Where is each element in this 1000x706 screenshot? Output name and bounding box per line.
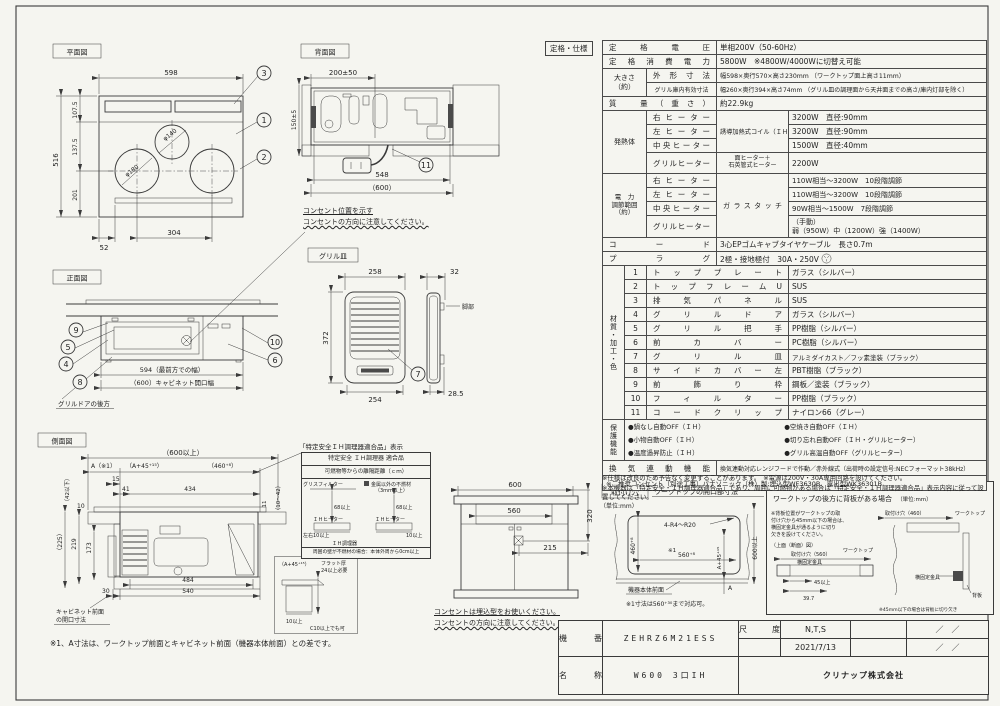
dim-10: 10	[77, 503, 85, 510]
dim-A45: （A+45⁺¹⁵）	[126, 463, 163, 470]
material-row-name: グリルドア	[647, 308, 789, 322]
dim-107-5: 107.5	[72, 101, 79, 118]
mount-ref1: ※1	[668, 548, 676, 554]
material-row-n: 11	[625, 406, 647, 420]
spec-range-right-value: 110W相当～3200W 10段階調節	[789, 174, 987, 188]
dim-548: 548	[375, 171, 388, 179]
callout-9: 9	[73, 326, 78, 335]
plan-view-label: 平面図	[67, 49, 88, 57]
dim-52: 52	[100, 244, 109, 252]
rear-outlet-note: コンセント位置を示す コンセントの方向に注意してください。	[303, 206, 429, 228]
spec-range-left-value: 110W相当～3200W 10段階調節	[789, 188, 987, 202]
material-row-value: PC樹脂（シルバー）	[789, 336, 987, 350]
callout-1: 1	[261, 116, 266, 125]
material-row-name: トッププレート	[647, 266, 789, 280]
cabinet-front-note-1: キャビネット前面	[56, 608, 104, 616]
spec-size1-value: 幅598×奥行570×高さ230mm （ワークトップ面上高さ11mm）	[717, 69, 987, 83]
spec-heater-center-value: 1500W 直径:40mm	[789, 139, 987, 153]
spec-heater-grill-type: 面ヒーター＋ 石英管式ヒーター	[717, 153, 789, 174]
spec-tag: 定格・仕様	[545, 41, 593, 56]
tokutei-title: 「特定安全ＩＨ調理器適合品」表示	[299, 441, 403, 451]
flat-detail: （A+45⁺¹⁵） フラット厚 24以上必要 10以上 C10以上でも可	[274, 556, 358, 634]
tokutei-noncomb-2: （3mm以上）	[375, 487, 408, 494]
material-row-value: PP樹脂（ブラック）	[789, 392, 987, 406]
bb-45min: 45以上	[814, 579, 830, 586]
material-row-value: SUS	[789, 294, 987, 308]
spec-range-right-label: 右ヒーター	[647, 174, 717, 188]
title-block-empty-3	[851, 639, 907, 657]
material-row-value: PBT樹脂（ブラック）	[789, 364, 987, 378]
scale-value: N,T,S	[781, 621, 851, 639]
callout-5: 5	[65, 343, 70, 352]
material-row-value: アルミダイカスト／フッ素塗装（ブラック）	[789, 350, 987, 364]
dim-cab-560: 560	[507, 507, 520, 515]
dim-600-min: （600以上）	[162, 448, 203, 457]
spec-cord-value: 3心EPゴムキャブタイヤケーブル 長さ0.7m	[717, 238, 987, 252]
title-block-table: 機 番 ZEHRZ6M21ESS 尺 度 N,T,S ／ ／ 2021/7/13…	[558, 620, 989, 695]
cabinet-outlet-note: コンセントは埋込型をお使いください。 コンセントの方向に注意してください。	[434, 607, 560, 629]
front-view-label: 正面図	[67, 275, 88, 283]
spec-protect-cell: ●鍋なし自動OFF（ＩＨ） ●空焼き自動OFF（ＩＨ） ●小物自動OFF（ＩＨ）…	[625, 420, 987, 461]
bb-note-5: ※45mm以下の場合は背板に切り欠き	[879, 606, 957, 613]
callout-2: 2	[261, 153, 266, 162]
tokutei-lr10: 左右10以上	[303, 532, 329, 539]
mount-a45: A+45⁺¹⁵	[716, 547, 723, 570]
dim-598: 598	[164, 69, 177, 77]
spec-power-value: 5800W ※4800W/4000Wに切替え可能	[717, 55, 987, 69]
scale-label: 尺 度	[739, 621, 781, 639]
spec-range-group: 電 力 調節範囲 （約）	[603, 174, 647, 238]
drawing-sheet: 平面図 φ140 φ180 598 516 107.5 137.5 201 52…	[0, 0, 1000, 706]
spec-heater-left-value: 3200W 直径:90mm	[789, 125, 987, 139]
dim-219: 219	[71, 538, 78, 550]
mount-560: 560⁺⁸	[678, 552, 696, 559]
spec-heater-type: 誘導加熱式コイル（ＩＨ）	[717, 111, 789, 153]
spec-heater-right-value: 3200W 直径:90mm	[789, 111, 987, 125]
mount-unit: （単位:mm）	[600, 502, 638, 510]
spec-plug-label: プラグ	[603, 252, 717, 266]
material-row-name: グリル皿	[647, 350, 789, 364]
spec-plug-cell: 2極・接地極付 30A・250V	[717, 252, 987, 266]
material-row-n: 8	[625, 364, 647, 378]
spec-table-wrap: 定格電圧 単相200V（50-60Hz） 定格消費電力 5800W ※4800W…	[602, 40, 987, 491]
side-footnote: ※1、A寸法は、ワークトップ前面とキャビネット前面（機器本体前面）との差です。	[50, 638, 335, 650]
dim-41: 41	[122, 486, 130, 493]
spec-mass-value: 約22.9kg	[717, 97, 987, 111]
material-row-n: 1	[625, 266, 647, 280]
spec-power-label: 定格消費電力	[603, 55, 717, 69]
spec-heater-group: 発熱体	[603, 111, 647, 174]
backboard-diagram: ※背板位置がワークトップの取 付け穴から45mm以下の場合は、 横固定金具が通る…	[767, 505, 991, 617]
revision-slash-2: ／ ／	[907, 639, 989, 657]
bb-note-4: 欠きを設けてください。	[771, 531, 826, 538]
material-row-name: コードクリップ	[647, 406, 789, 420]
spec-range-grill-label: グリルヒーター	[647, 216, 717, 238]
material-row-name: トップフレームU	[647, 280, 789, 294]
material-row-name: グリル把手	[647, 322, 789, 336]
dim-cab-320: 320	[586, 509, 594, 522]
spec-size1-label: 外形寸法	[647, 69, 717, 83]
dim-30: 30	[102, 588, 110, 595]
tokutei-noncomb-1: 金属以外の不燃材	[371, 481, 411, 488]
spec-voltage-value: 単相200V（50-60Hz）	[717, 41, 987, 55]
mount-a: A	[728, 585, 733, 592]
bb-subtitle: （上面（断面）図）	[771, 542, 816, 549]
spec-cord-label: コード	[603, 238, 717, 252]
mount-460: 460⁺⁸	[630, 537, 637, 555]
material-row-value: ナイロン66（グレー）	[789, 406, 987, 420]
callout-4: 4	[63, 360, 68, 369]
material-row-n: 3	[625, 294, 647, 308]
dim-15: 15	[112, 476, 120, 483]
tokutei-line1: 特定安全 ＩＨ調理器 適合品	[302, 453, 430, 466]
dim-460: （460⁺⁸）	[208, 463, 237, 470]
material-row-value: PP樹脂（シルバー）	[789, 322, 987, 336]
material-row-n: 6	[625, 336, 647, 350]
protect-item: ●切り忘れ自動OFF（ＩＨ・グリルヒーター）	[784, 434, 983, 447]
bb-note-1: ※背板位置がワークトップの取	[771, 510, 840, 517]
callout-10: 10	[270, 338, 280, 347]
grill-pan-label: グリル皿	[319, 252, 347, 261]
rear-outlet-note-line1: コンセント位置を示す	[303, 206, 429, 217]
spec-heater-grill-label: グリルヒーター	[647, 153, 717, 174]
material-row-n: 5	[625, 322, 647, 336]
spec-size2-value: 幅260×奥行394×高さ74mm （グリル皿の調理面から天井面までの高さ/庫内…	[717, 83, 987, 97]
dim-540: 540	[182, 588, 194, 595]
spec-size2-label: グリル庫内有効寸法	[647, 83, 717, 97]
revision-slash-1: ／ ／	[907, 621, 989, 639]
spec-voltage-label: 定格電圧	[603, 41, 717, 55]
material-row-n: 7	[625, 350, 647, 364]
tokutei-ih1: ＩＨヒーター	[313, 516, 343, 523]
spec-protect-group: 保護機能	[603, 420, 625, 461]
leg-label: 脚部	[462, 303, 474, 311]
material-row-name: フィルター	[647, 392, 789, 406]
bb-bracket-2: 横固定金具	[915, 574, 940, 581]
mount-600: 600以上	[751, 536, 759, 559]
dim-372: 372	[322, 331, 330, 344]
dim-254: 254	[368, 396, 382, 404]
spec-heater-left-label: 左ヒーター	[647, 125, 717, 139]
title-block-empty-2	[739, 639, 781, 657]
tokutei-grease: グリスフィルター	[303, 481, 343, 488]
rear-outlet-note-line2: コンセントの方向に注意してください。	[303, 217, 429, 228]
mount-note: ※1寸法は560⁺³⁰まで対応可。	[626, 600, 708, 608]
dim-phi140: φ140	[162, 127, 179, 142]
callout-11: 11	[421, 161, 431, 170]
callout-3: 3	[261, 69, 266, 78]
side-view-label: 側面図	[52, 437, 73, 446]
model-number-value: ZEHRZ6M21ESS	[603, 621, 739, 657]
material-row-name: 前カバー	[647, 336, 789, 350]
callout-6: 6	[272, 356, 277, 365]
plan-view: 平面図 φ140 φ180 598 516 107.5 137.5 201 52…	[28, 38, 300, 270]
flat-d10: 10以上	[286, 618, 302, 625]
material-row-value: ガラス（シルバー）	[789, 266, 987, 280]
callout-8: 8	[77, 378, 82, 387]
material-row-value: SUS	[789, 280, 987, 294]
bb-note-2: 付け穴から45mm以下の場合は、	[771, 517, 847, 524]
spec-range-grill-value: （手動） 弱（950W）中（1200W）強（1400W）	[789, 216, 987, 238]
tokutei-68b: 68以上	[396, 504, 412, 511]
dim-cab-215: 215	[543, 544, 556, 552]
tokutei-cooker: ＩＨ調理器	[332, 540, 357, 547]
dim-516: 516	[52, 153, 60, 167]
dim-28-5: 28.5	[448, 390, 464, 398]
material-row-name: 排気パネル	[647, 294, 789, 308]
dim-594: 594（最前方での幅）	[140, 365, 204, 374]
protect-item: ●小物自動OFF（ＩＨ）	[628, 434, 784, 447]
material-row-n: 2	[625, 280, 647, 294]
date-value: 2021/7/13	[781, 639, 851, 657]
callout-7: 7	[415, 370, 420, 379]
dim-225: （225）	[57, 530, 64, 553]
rear-view-label: 背面図	[315, 48, 336, 57]
tokutei-bottom: 周囲の壁が不燃材の場合：本体外周から0cm以上	[302, 547, 430, 558]
product-name-value: W600 3口IH	[603, 657, 739, 695]
spec-plug-value: 2極・接地極付 30A・250V	[720, 255, 819, 264]
front-view: 正面図 9 5 4 8 10 6 594（最前方での幅） （600）キャビネット…	[28, 268, 306, 426]
tokutei-box: 特定安全 ＩＨ調理器 適合品 可燃物等からの離隔距離（ｃｍ） グリスフィルター …	[301, 452, 431, 559]
cabinet-front-note-2: の開口寸法	[56, 616, 86, 624]
spec-range-center-value: 90W相当～1500W 7段階調節	[789, 202, 987, 216]
spec-note-1: ※仕様は改良のため予告なく変更することがあります。 ※電源は200V・30A専用…	[602, 474, 988, 484]
bb-397: 39.7	[803, 596, 814, 602]
dim-42max: （42以下）	[64, 476, 71, 505]
plug-icon	[821, 253, 832, 264]
material-row-value: ガラス（シルバー）	[789, 308, 987, 322]
company-name: クリナップ株式会社	[739, 657, 989, 695]
dim-200-50: 200±50	[329, 69, 357, 77]
spec-range-center-label: 中央ヒーター	[647, 202, 717, 216]
flat-c10: C10以上でも可	[310, 625, 345, 632]
dim-600-cab: （600）キャビネット開口幅	[130, 378, 214, 387]
title-block-empty-1	[851, 621, 907, 639]
bb-hole460: 取付け穴（460）	[885, 510, 925, 517]
dim-10-42: （10～42）	[275, 483, 282, 514]
protect-item: ●鍋なし自動OFF（ＩＨ）	[628, 421, 784, 434]
dim-201: 201	[72, 189, 79, 201]
dim-cab-600: 600	[508, 481, 521, 489]
dim-phi180: φ180	[124, 163, 141, 178]
front-grill-door-note: グリルドアの後方	[58, 399, 111, 408]
spec-table: 定格電圧 単相200V（50-60Hz） 定格消費電力 5800W ※4800W…	[602, 40, 987, 491]
grill-pan-view: グリル皿 258 372 254 32 脚部 28.5 7	[300, 243, 515, 441]
dim-32: 32	[450, 268, 459, 276]
bb-note-3: 横固定金具が通るように切り	[771, 524, 836, 531]
spec-materials-group: 材質・加工・色	[603, 266, 625, 420]
tokutei-diagram: グリスフィルター 金属以外の不燃材 （3mm以上） 68以上 68以上 ＩＨヒー…	[302, 479, 428, 547]
dim-304: 304	[167, 229, 181, 237]
tokutei-68a: 68以上	[334, 504, 350, 511]
flat-label-2: 24以上必要	[321, 567, 347, 574]
dim-600: （600）	[368, 184, 395, 192]
material-row-name: サイドカバー左	[647, 364, 789, 378]
spec-note-2: ※本機器は「特定安全・ＩＨ調理器適合品」であり、周囲に可燃物がある場合は「特定安…	[602, 484, 988, 503]
spec-notes: ※仕様は改良のため予告なく変更することがあります。 ※電源は200V・30A専用…	[602, 474, 988, 503]
tokutei-line2: 可燃物等からの離隔距離（ｃｍ）	[302, 466, 430, 479]
spec-heater-grill-value: 2200W	[789, 153, 987, 174]
dim-150-5: 150±5	[291, 110, 298, 130]
material-row-n: 9	[625, 378, 647, 392]
bb-board: 背板	[972, 592, 982, 599]
bb-bracket-1: 横固定金具	[797, 559, 822, 566]
spec-mass-label: 質 量（重さ）	[603, 97, 717, 111]
spec-range-type: ガラスタッチ	[717, 174, 789, 238]
spec-heater-center-label: 中央ヒーター	[647, 139, 717, 153]
title-block: 機 番 ZEHRZ6M21ESS 尺 度 N,T,S ／ ／ 2021/7/13…	[558, 620, 989, 695]
protect-item: ●温度過昇防止（ＩＨ）	[628, 447, 784, 460]
protect-item: ●空焼き自動OFF（ＩＨ）	[784, 421, 983, 434]
material-row-value: 鋼板／塗装（ブラック）	[789, 378, 987, 392]
model-number-label: 機 番	[559, 621, 603, 657]
flat-label-1: フラット厚	[321, 561, 346, 567]
dim-173: 173	[86, 542, 93, 554]
material-row-n: 4	[625, 308, 647, 322]
dim-137-5: 137.5	[72, 138, 79, 155]
dim-434: 434	[184, 486, 196, 493]
material-row-name: 前飾り枠	[647, 378, 789, 392]
protect-item: ●グリル高温自動OFF（グリルヒーター）	[784, 447, 983, 460]
bb-hole560: 取付け穴（560）	[791, 551, 831, 558]
tokutei-r10: 10以上	[406, 532, 422, 539]
mount-front-face: 機器本体前面	[628, 586, 664, 594]
spec-size-group: 大きさ （約）	[603, 69, 647, 97]
spec-range-left-label: 左ヒーター	[647, 188, 717, 202]
bb-worktop-2: ワークトップ	[955, 511, 985, 517]
bb-worktop-1: ワークトップ	[843, 548, 873, 554]
cabinet-outlet-note-line2: コンセントの方向に注意してください。	[434, 618, 560, 629]
dim-A: A（※1）	[91, 463, 116, 470]
mount-radius: 4-R4～R20	[664, 522, 696, 529]
dim-258: 258	[368, 268, 381, 276]
tokutei-ih2: ＩＨヒーター	[375, 516, 405, 523]
product-name-label: 名 称	[559, 657, 603, 695]
dim-11: 11	[262, 501, 268, 508]
spec-heater-right-label: 右ヒーター	[647, 111, 717, 125]
material-row-n: 10	[625, 392, 647, 406]
dim-484: 484	[182, 577, 194, 584]
flat-a45: （A+45⁺¹⁵）	[279, 562, 310, 568]
cabinet-outlet-note-line1: コンセントは埋込型をお使いください。	[434, 607, 560, 618]
